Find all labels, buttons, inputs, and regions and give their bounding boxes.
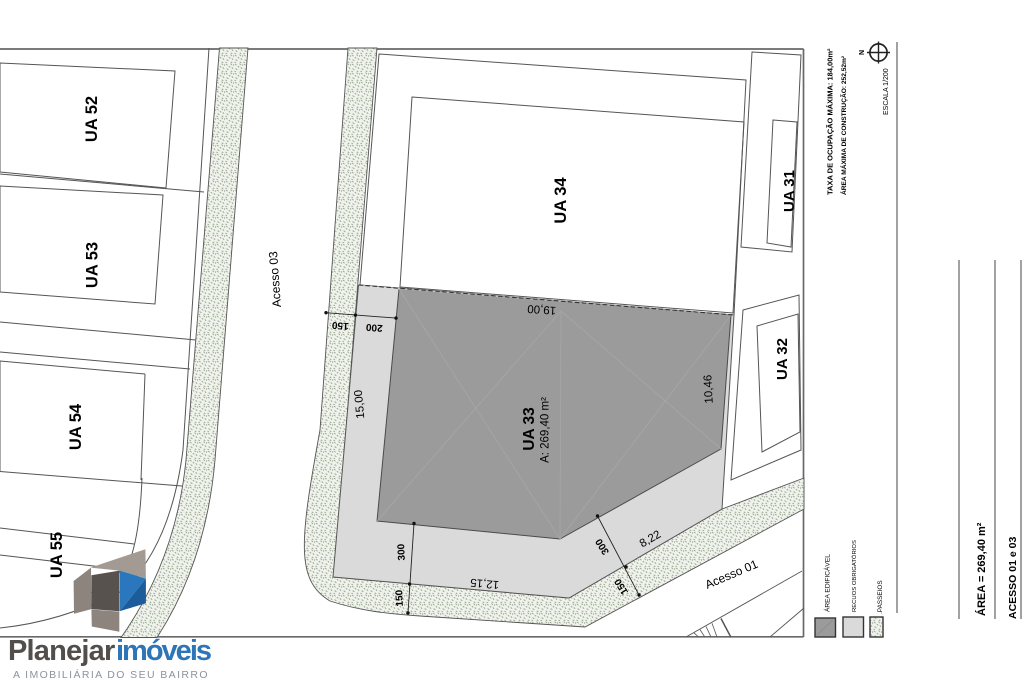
- svg-text:10,46: 10,46: [702, 374, 715, 403]
- svg-text:TAXA DE OCUPAÇÃO MÁXIMA: 184,0: TAXA DE OCUPAÇÃO MÁXIMA: 184,00m²: [826, 48, 835, 195]
- svg-text:ACESSO 01 e 03: ACESSO 01 e 03: [1007, 537, 1019, 619]
- svg-text:UA 52: UA 52: [83, 96, 101, 142]
- svg-text:ESCALA 1/200: ESCALA 1/200: [883, 68, 890, 115]
- svg-text:15,00: 15,00: [353, 389, 367, 419]
- svg-text:ÁREA = 269,40 m²: ÁREA = 269,40 m²: [975, 522, 988, 616]
- svg-text:Planejar: Planejar: [8, 635, 115, 667]
- svg-text:.PASSEIOS: .PASSEIOS: [877, 580, 884, 614]
- svg-text:A: 269,40 m²: A: 269,40 m²: [540, 397, 552, 463]
- svg-text:200: 200: [365, 321, 383, 333]
- svg-text:UA 54: UA 54: [67, 403, 85, 450]
- svg-text:150: 150: [331, 319, 349, 331]
- svg-text:UA 53: UA 53: [84, 242, 102, 288]
- svg-text:150: 150: [394, 589, 406, 607]
- svg-text:A IMOBILIÁRIA DO SEU BAIRRO: A IMOBILIÁRIA DO SEU BAIRRO: [13, 668, 209, 681]
- svg-text:19,00: 19,00: [527, 302, 557, 316]
- svg-text:N: N: [859, 50, 866, 55]
- svg-text:ÁREA MÁXIMA DE CONSTRUÇÃO: 252: ÁREA MÁXIMA DE CONSTRUÇÃO: 252,52m²: [839, 55, 848, 195]
- svg-text:12,15: 12,15: [470, 576, 500, 590]
- svg-text:UA 31: UA 31: [781, 170, 798, 212]
- svg-text:imóveis: imóveis: [116, 635, 211, 667]
- svg-text:UA 55: UA 55: [48, 532, 66, 578]
- svg-text:ÁREA EDIFICÁVEL: ÁREA EDIFICÁVEL: [823, 554, 832, 612]
- svg-text:UA 34: UA 34: [552, 177, 570, 224]
- svg-text:300: 300: [396, 543, 408, 561]
- svg-text:UA 32: UA 32: [774, 338, 791, 380]
- svg-text:UA 33: UA 33: [521, 407, 538, 451]
- svg-text:RECUOS OBRIGATÓRIOS: RECUOS OBRIGATÓRIOS: [851, 540, 858, 612]
